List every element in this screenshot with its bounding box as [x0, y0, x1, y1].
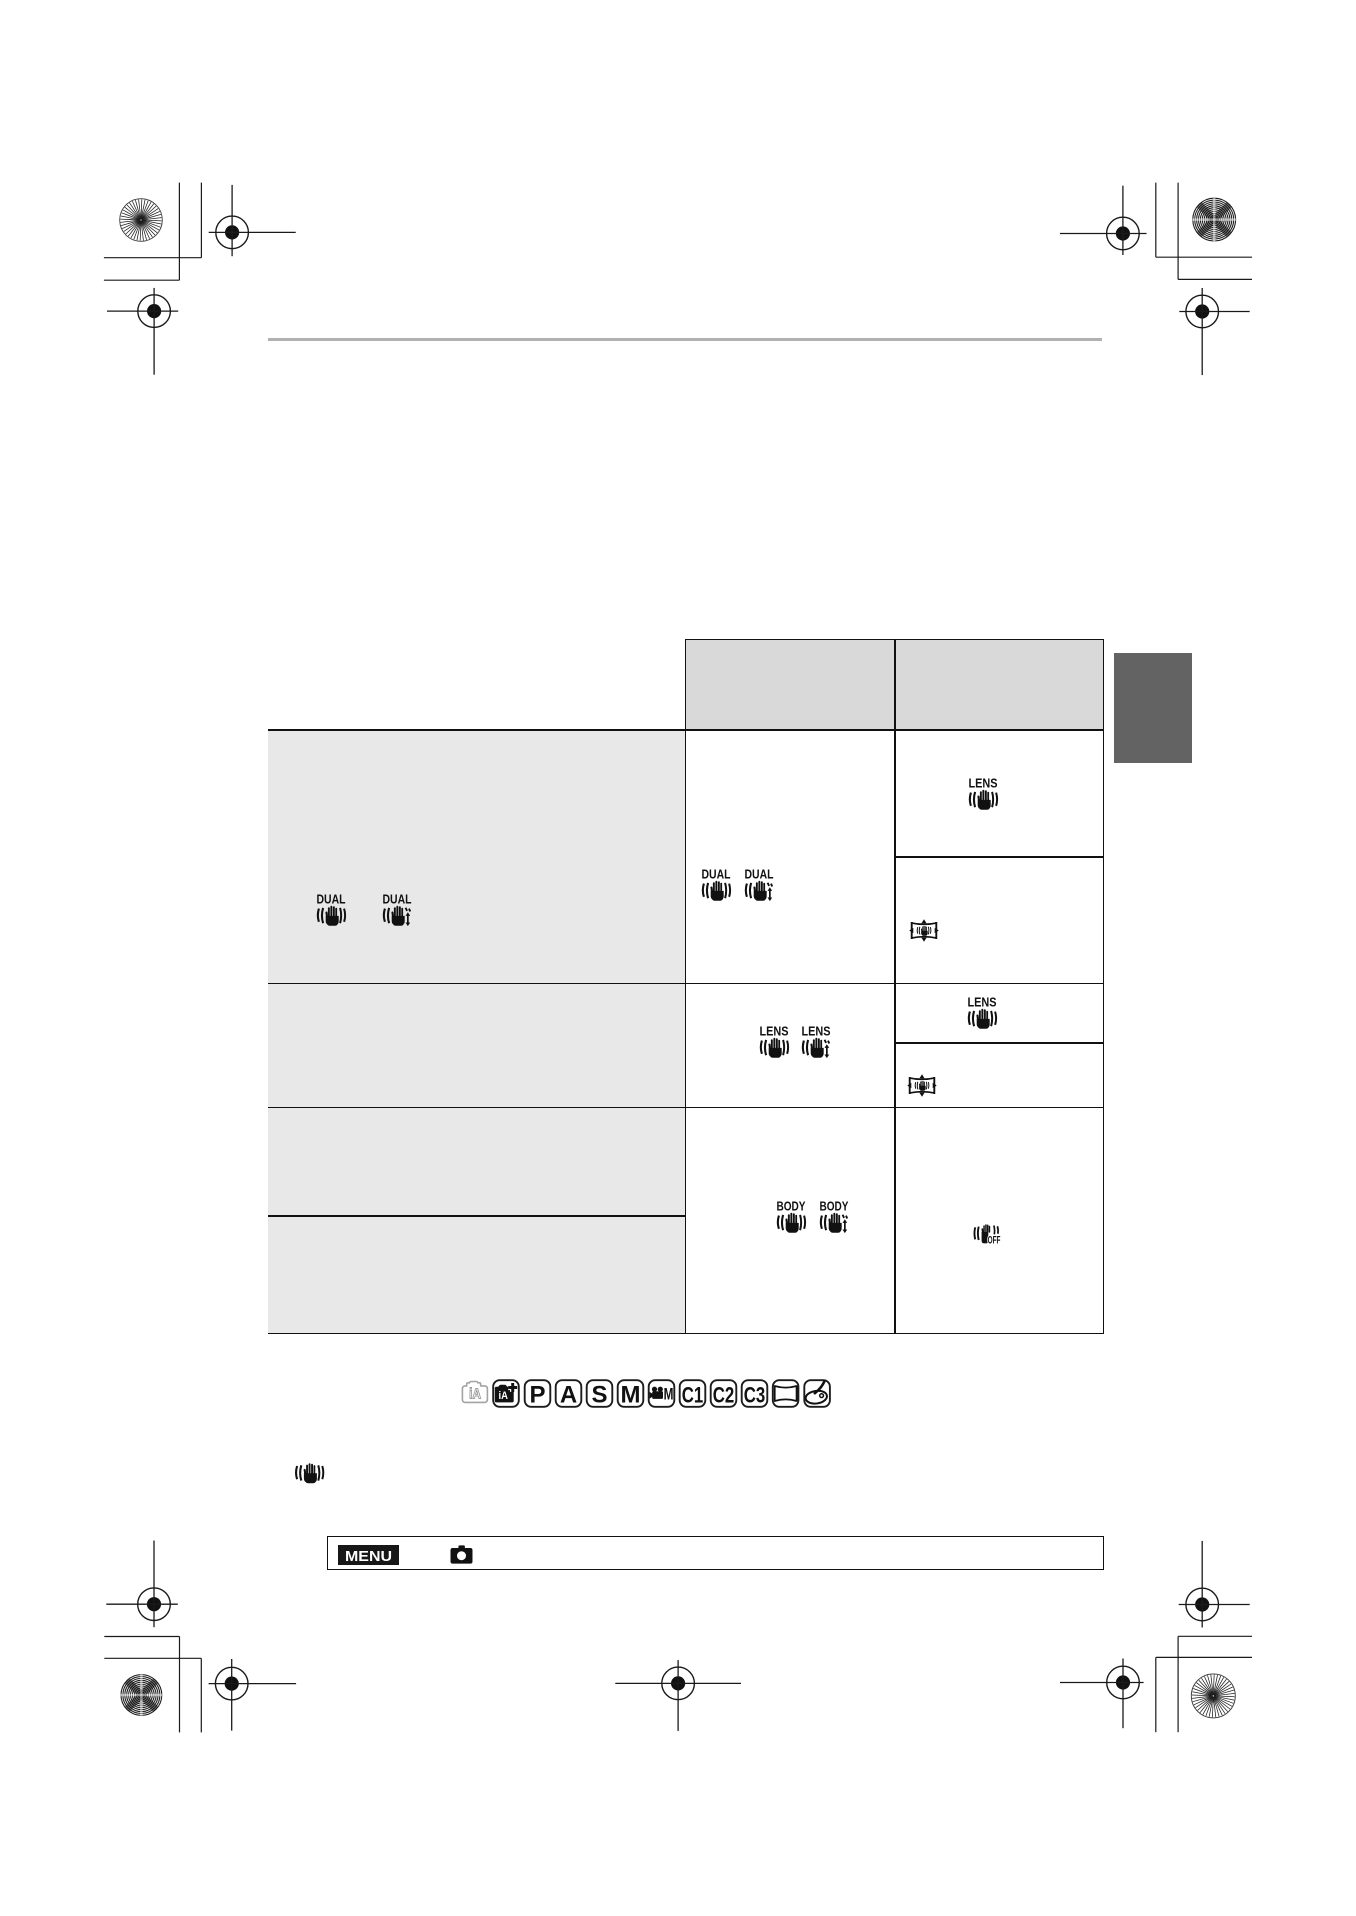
svg-text:C2: C2	[713, 1382, 735, 1407]
svg-text:iA: iA	[498, 1390, 508, 1402]
svg-text:DUAL: DUAL	[316, 894, 345, 907]
svg-text:BODY: BODY	[820, 1201, 850, 1214]
svg-text:M: M	[664, 1385, 674, 1403]
svg-text:LENS: LENS	[968, 778, 997, 791]
svg-text:DUAL: DUAL	[383, 894, 412, 907]
svg-text:MENU: MENU	[345, 1549, 392, 1565]
svg-text:BODY: BODY	[777, 1201, 807, 1214]
svg-text:DUAL: DUAL	[702, 869, 731, 882]
svg-text:C3: C3	[744, 1382, 766, 1407]
svg-text:P: P	[529, 1381, 545, 1408]
svg-text:A: A	[560, 1381, 577, 1408]
svg-text:M: M	[621, 1381, 641, 1408]
svg-text:S: S	[591, 1381, 607, 1408]
svg-text:LENS: LENS	[760, 1026, 789, 1039]
svg-text:C1: C1	[682, 1382, 704, 1407]
svg-text:LENS: LENS	[802, 1026, 831, 1039]
svg-text:LENS: LENS	[968, 997, 997, 1010]
svg-text:DUAL: DUAL	[744, 869, 773, 882]
svg-text:iA: iA	[469, 1385, 481, 1402]
